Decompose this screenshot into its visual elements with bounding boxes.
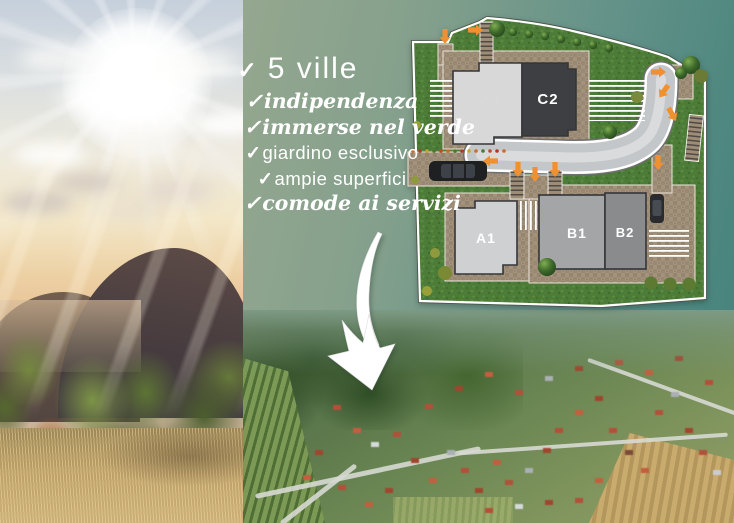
check-icon: ✓	[244, 115, 261, 139]
check-icon: ✓	[244, 191, 261, 215]
feature-item: ✓indipendenza	[244, 89, 420, 115]
check-icon: ✓	[246, 89, 263, 113]
site-plan-map: C1 C2 A1 B1 B2	[405, 5, 710, 312]
building-label: B2	[616, 225, 635, 240]
feature-text: immerse nel verde	[262, 115, 475, 139]
hand-drawn-arrow-icon	[322, 228, 412, 398]
landscape-photo	[0, 0, 243, 523]
feature-item: ✓immerse nel verde	[244, 115, 420, 141]
feature-text: ampie superfici	[275, 168, 407, 189]
aerial-photo	[243, 310, 734, 523]
feature-text: comode ai servizi	[262, 191, 461, 215]
feature-text: indipendenza	[264, 89, 418, 113]
feature-item: ✓ampie superfici	[244, 166, 420, 192]
feature-item: ✓giardino esclusivo	[244, 140, 420, 166]
feature-text: giardino esclusivo	[262, 142, 418, 163]
golden-meadow	[0, 428, 243, 523]
light-beams	[0, 120, 243, 420]
clouds	[0, 0, 60, 13]
villas-title-text: 5 ville	[268, 52, 359, 85]
check-icon: ✓	[245, 142, 261, 163]
villas-title: ✓5 ville	[210, 52, 386, 86]
building-label: C1	[480, 93, 501, 110]
building-label: C2	[537, 91, 558, 108]
check-icon: ✓	[258, 168, 274, 189]
brochure-page: ✓5 ville ✓indipendenza ✓immerse nel verd…	[0, 0, 734, 523]
features-list: ✓5 ville ✓indipendenza ✓immerse nel verd…	[244, 52, 420, 217]
building-label: B1	[567, 225, 587, 241]
check-icon: ✓	[238, 57, 259, 83]
parked-car	[429, 161, 487, 181]
aerial-top-fade	[243, 310, 734, 523]
feature-item: ✓comode ai servizi	[244, 191, 420, 217]
parked-car	[650, 194, 664, 223]
building-label: A1	[476, 230, 496, 246]
